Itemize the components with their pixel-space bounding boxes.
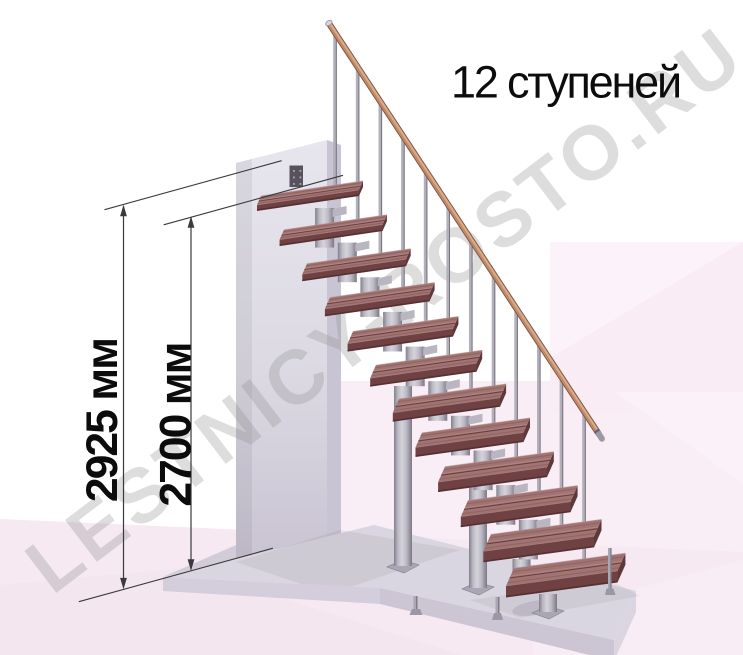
svg-text:2700 мм: 2700 мм [152, 343, 201, 506]
svg-text:2925 мм: 2925 мм [78, 339, 127, 502]
svg-text:12 ступеней: 12 ступеней [451, 57, 680, 108]
